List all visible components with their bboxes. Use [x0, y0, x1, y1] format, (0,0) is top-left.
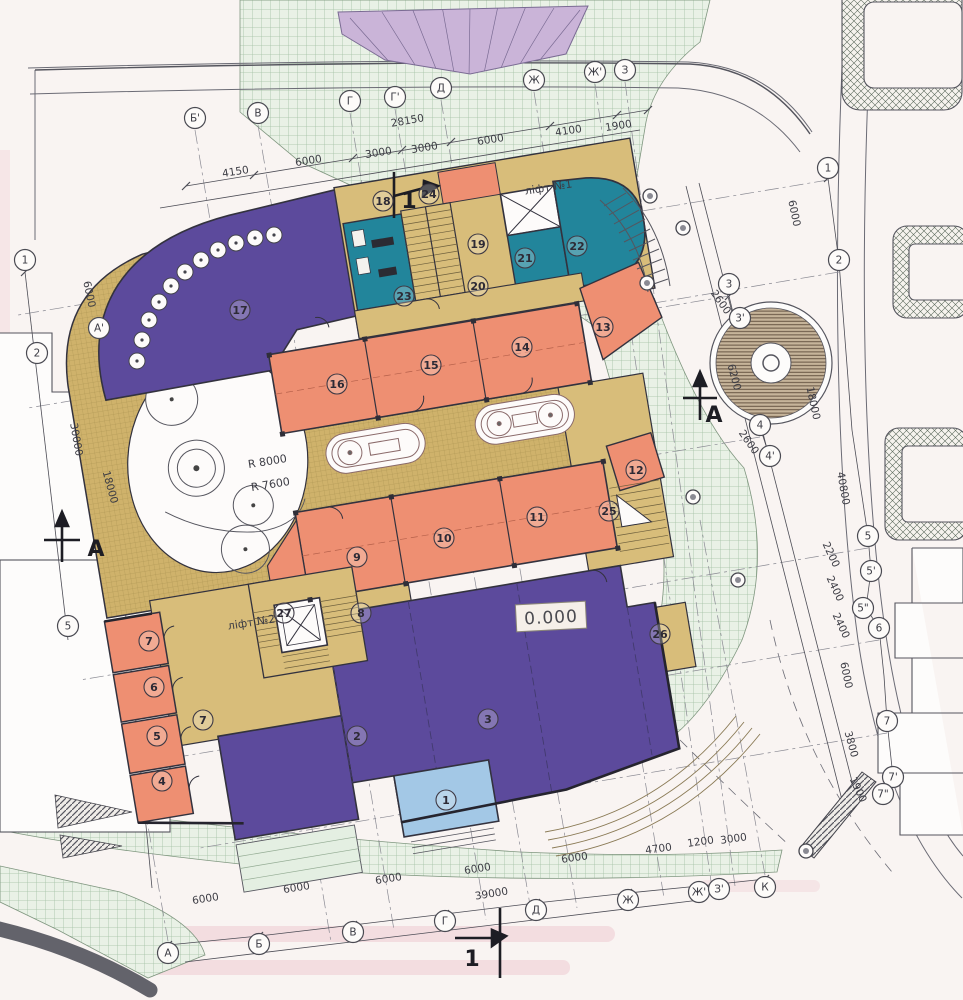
lamp-inner-dot	[644, 280, 650, 286]
shrub-center-dot	[272, 233, 275, 236]
room-number-label: 22	[569, 240, 584, 253]
site-plan-page: 0.000 2815041506000300030006000410019006…	[0, 0, 963, 1000]
section-mark-label: 1	[401, 189, 416, 214]
room-number-label: 14	[514, 341, 530, 354]
axis-bubble-label: 7"	[877, 789, 889, 801]
room-number-label: 20	[470, 280, 486, 293]
shrub-center-dot	[183, 270, 186, 273]
room-number-label: 2	[353, 730, 361, 743]
room-number-label: 24	[421, 188, 437, 201]
room-number-label: 15	[423, 359, 438, 372]
axis-bubble-label: Д	[532, 905, 540, 917]
shrub-center-dot	[216, 248, 219, 251]
lamp-inner-dot	[735, 577, 741, 583]
lamp-inner-dot	[690, 494, 696, 500]
axis-bubble-label: 4'	[765, 451, 775, 463]
axis-bubble-label: В	[349, 927, 356, 939]
axis-bubble-label: З	[622, 65, 629, 77]
room-number-label: 25	[601, 505, 616, 518]
room-number-label: 10	[436, 532, 452, 545]
room-number-label: 12	[628, 464, 643, 477]
room-number-label: 18	[375, 195, 390, 208]
elevation-value: 0.000	[524, 607, 579, 630]
room-number-label: 19	[470, 238, 485, 251]
axis-bubble-label: 3	[726, 279, 733, 291]
site-plan-drawing: 0.000 2815041506000300030006000410019006…	[0, 0, 963, 1000]
shrub-center-dot	[157, 300, 160, 303]
axis-bubble-label: 5	[65, 621, 72, 633]
room-number-label: 23	[396, 290, 411, 303]
room-number-label: 1	[442, 794, 450, 807]
axis-bubble-label: 7'	[888, 772, 898, 784]
axis-bubble-label: 7	[884, 716, 891, 728]
axis-bubble-label: 5'	[866, 566, 876, 578]
axis-bubble-label: А	[164, 948, 172, 960]
shrub-center-dot	[199, 258, 202, 261]
axis-bubble-label: 5"	[857, 603, 869, 615]
room-number-label: 7	[145, 635, 153, 648]
shrub-center-dot	[234, 241, 237, 244]
axis-bubble-label: К	[761, 882, 769, 894]
room-number-label: 5	[153, 730, 161, 743]
axis-bubble-label: Ж'	[692, 887, 706, 899]
axis-bubble-label: Г	[347, 96, 353, 108]
room-number-label: 8	[357, 607, 365, 620]
axis-bubble-label: 1	[22, 255, 29, 267]
lamp-inner-dot	[803, 848, 809, 854]
section-mark-label: А	[705, 403, 722, 428]
axis-bubble-label: 5	[865, 531, 872, 543]
lamp-inner-dot	[680, 225, 686, 231]
room-number-label: 17	[232, 304, 247, 317]
axis-bubble-label: 2	[836, 255, 843, 267]
room-number-label: 13	[595, 321, 610, 334]
axis-bubble-label: 3'	[735, 313, 745, 325]
shrub-center-dot	[135, 359, 138, 362]
room-number-label: 11	[529, 511, 544, 524]
shrub-center-dot	[169, 284, 172, 287]
axis-bubble-label: 2	[34, 348, 41, 360]
room-number-label: 9	[353, 551, 361, 564]
axis-bubble-label: А'	[94, 323, 104, 335]
room-number-label: 4	[158, 775, 166, 788]
section-mark-label: А	[87, 537, 104, 562]
room-number-label: 27	[276, 607, 291, 620]
shrub-center-dot	[140, 338, 143, 341]
room-2-west	[218, 716, 359, 840]
axis-bubble-label: Д	[437, 83, 445, 95]
axis-bubble-label: Г	[442, 916, 448, 928]
section-mark-label: 1	[464, 947, 479, 972]
shrub-center-dot	[253, 236, 256, 239]
axis-bubble-label: З'	[714, 884, 724, 896]
axis-bubble-label: 6	[876, 623, 883, 635]
elevation-mark: 0.000	[515, 601, 586, 632]
room-number-label: 3	[484, 713, 492, 726]
room-number-label: 7	[199, 714, 207, 727]
room-number-label: 21	[517, 252, 532, 265]
axis-bubble-label: В	[254, 108, 261, 120]
axis-bubble-label: Б	[255, 939, 262, 951]
room-number-label: 6	[150, 681, 158, 694]
axis-bubble-label: Г'	[390, 92, 399, 104]
room-number-label: 26	[652, 628, 668, 641]
lamp-inner-dot	[647, 193, 653, 199]
axis-bubble-label: 4	[757, 420, 764, 432]
axis-bubble-label: Ж'	[588, 67, 602, 79]
axis-bubble-label: Б'	[190, 113, 200, 125]
axis-bubble-label: Ж	[528, 75, 540, 87]
axis-bubble-label: Ж	[622, 895, 634, 907]
room-number-label: 16	[329, 378, 345, 391]
axis-bubble-label: 1	[825, 163, 832, 175]
shrub-center-dot	[147, 318, 150, 321]
